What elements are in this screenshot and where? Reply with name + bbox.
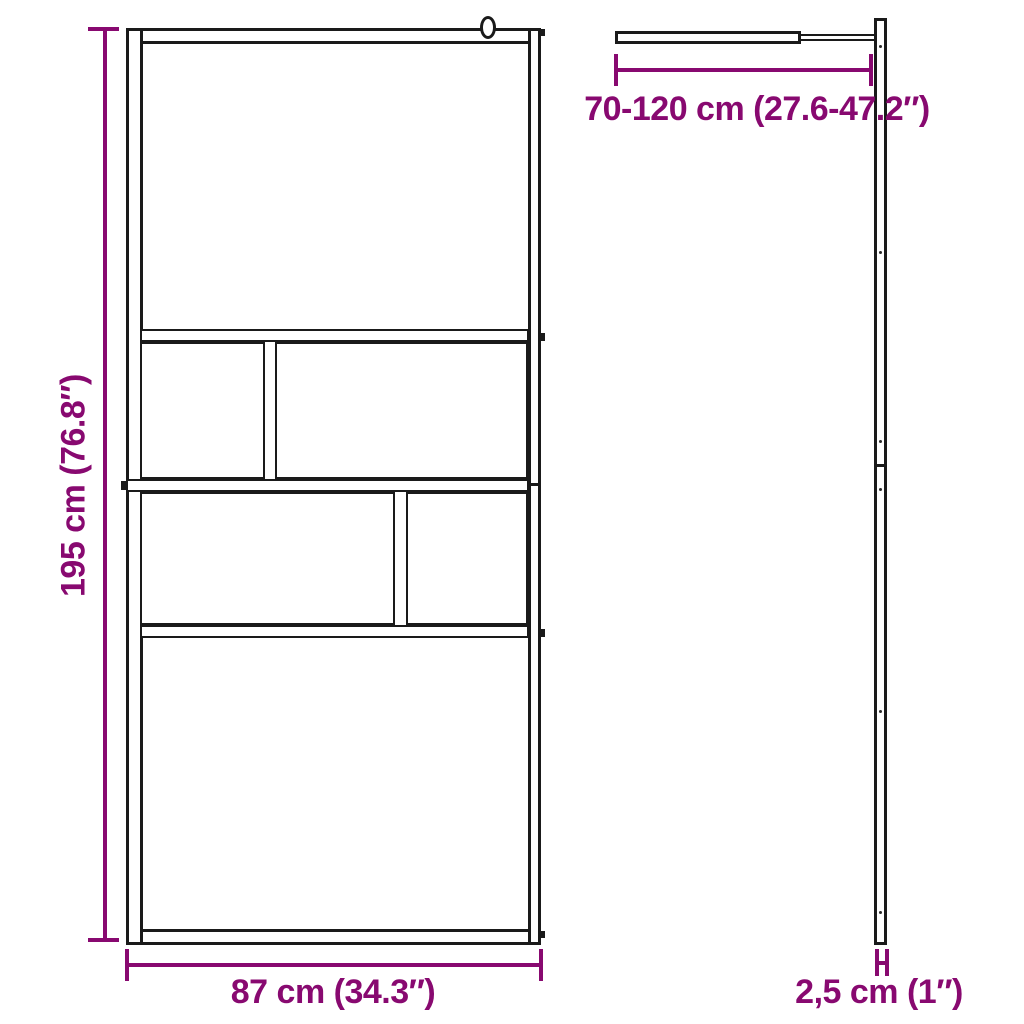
thickness-dimension-label: 2,5 cm (1″) <box>679 973 1024 1012</box>
wall-anchor-tick <box>540 333 545 341</box>
glass-rail-middle <box>126 479 529 492</box>
arm-dimension-cap-left <box>614 54 618 86</box>
width-dimension-cap-right <box>539 949 543 981</box>
glass-rail-top <box>140 329 529 342</box>
brick-panel-row2-right <box>406 492 528 625</box>
brick-panel-row1-right <box>275 342 528 479</box>
screw-dot <box>879 911 882 914</box>
wall-anchor-tick <box>540 931 545 938</box>
screw-dot <box>879 440 882 443</box>
thickness-connector <box>875 961 889 965</box>
brick-panel-row2-left <box>140 492 395 625</box>
height-dimension-cap-top <box>88 27 119 31</box>
width-dimension-cap-left <box>125 949 129 981</box>
height-dimension-label: 195 cm (76.8″) <box>48 330 100 642</box>
arm-dimension-line <box>616 68 873 72</box>
handle-knob <box>480 16 496 39</box>
wall-anchor-tick <box>540 629 545 637</box>
bottom-frame-bar <box>126 929 540 945</box>
arm-dimension-label: 70-120 cm (27.6-47.2″) <box>557 90 957 129</box>
support-arm-rod <box>799 34 877 41</box>
rail-wall-anchor-left <box>121 481 126 490</box>
right-frame-seam <box>531 483 539 486</box>
screw-dot <box>879 488 882 491</box>
width-dimension-line <box>127 963 542 967</box>
height-dimension-line <box>103 28 107 941</box>
side-profile <box>874 18 887 945</box>
wall-anchor-tick <box>540 29 545 36</box>
arm-dimension-cap-right <box>869 54 873 86</box>
brick-panel-row1-left <box>140 342 265 479</box>
right-frame-bar <box>528 28 541 945</box>
screw-dot <box>879 45 882 48</box>
support-arm-bar <box>615 31 801 44</box>
height-dimension-cap-bottom <box>88 938 119 942</box>
shower-wall-dimension-diagram: 195 cm (76.8″) 87 cm (34.3″) 70-120 cm (… <box>0 0 1024 1024</box>
screw-dot <box>879 710 882 713</box>
screw-dot <box>879 251 882 254</box>
width-dimension-label: 87 cm (34.3″) <box>133 973 533 1012</box>
side-profile-seam <box>874 464 887 467</box>
glass-rail-bottom <box>140 625 529 638</box>
